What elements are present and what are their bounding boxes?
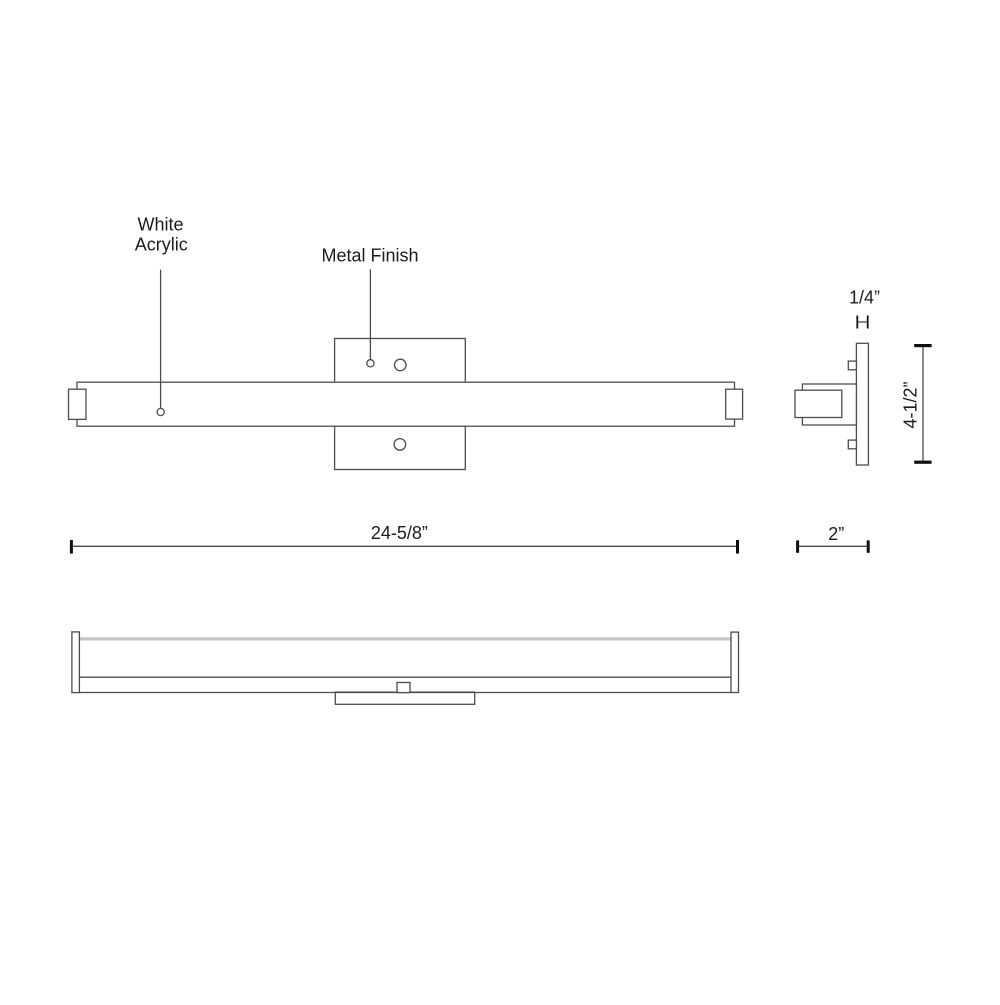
svg-text:2”: 2” <box>828 524 844 544</box>
svg-text:Metal Finish: Metal Finish <box>321 246 418 266</box>
svg-text:24-5/8”: 24-5/8” <box>371 523 428 543</box>
svg-text:Acrylic: Acrylic <box>135 235 188 255</box>
svg-text:1/4”: 1/4” <box>849 288 880 308</box>
svg-text:4-1/2”: 4-1/2” <box>901 381 921 428</box>
svg-text:White: White <box>137 215 183 235</box>
